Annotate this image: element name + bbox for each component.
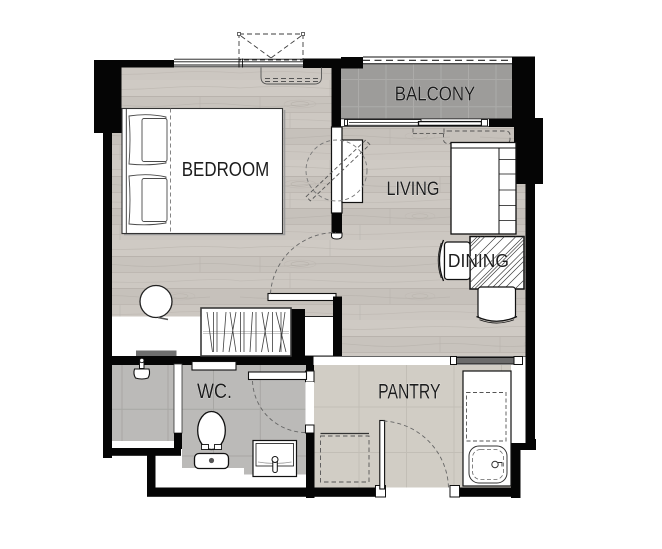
svg-text:BEDROOM: BEDROOM	[182, 159, 270, 181]
svg-text:WC.: WC.	[197, 380, 232, 403]
svg-text:PANTRY: PANTRY	[378, 381, 440, 404]
svg-text:LIVING: LIVING	[387, 179, 440, 200]
svg-text:BALCONY: BALCONY	[395, 83, 476, 105]
svg-text:DINING: DINING	[448, 250, 509, 271]
